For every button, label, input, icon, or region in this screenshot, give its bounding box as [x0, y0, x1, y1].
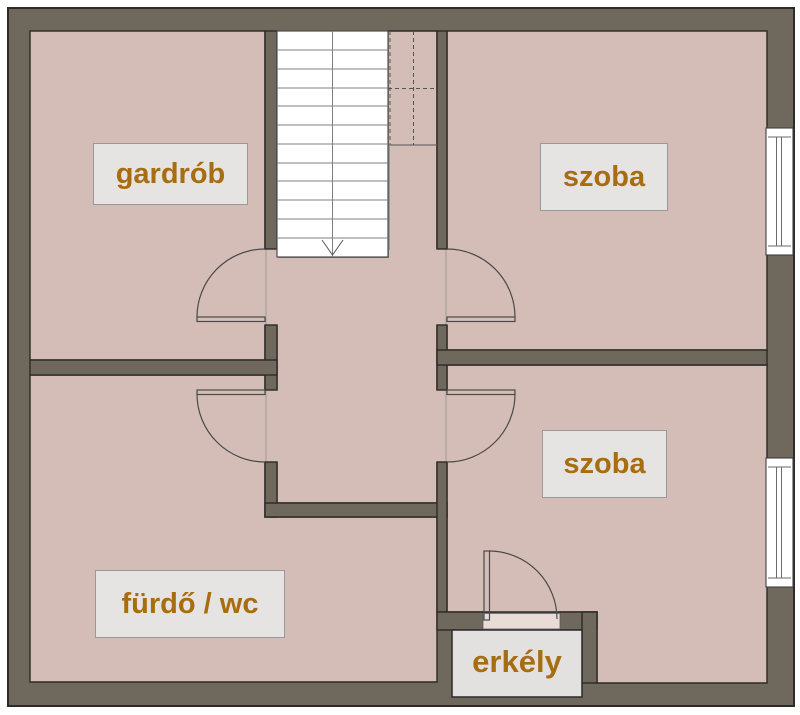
wall-gardrob-furdo-divider — [30, 360, 277, 375]
wall-balcony-right-flank — [582, 612, 597, 683]
label-furdo-wc-text: fürdő / wc — [122, 588, 259, 621]
wall-hall-left-stem — [265, 325, 277, 390]
wall-szoba-top-left — [437, 31, 447, 249]
window-bottom — [766, 458, 793, 587]
wall-szoba-divider — [437, 350, 767, 365]
label-erkely-text: erkély — [472, 644, 562, 680]
label-szoba-top: szoba — [540, 143, 668, 211]
wall-balcony-left-jog — [437, 612, 483, 630]
label-szoba-bottom-text: szoba — [563, 448, 645, 481]
label-gardrob-text: gardrób — [116, 158, 226, 191]
label-szoba-bottom: szoba — [542, 430, 667, 498]
wall-gardrob-right — [265, 31, 277, 249]
wall-hall-right-lower — [437, 462, 447, 612]
wall-hall-bottom — [265, 503, 447, 517]
window-frame — [766, 128, 793, 255]
window-top — [766, 128, 793, 255]
label-szoba-top-text: szoba — [563, 161, 645, 194]
window-frame — [766, 458, 793, 587]
label-furdo-wc: fürdő / wc — [95, 570, 285, 638]
floor-plan: gardrób szoba szoba fürdő / wc erkély — [0, 0, 800, 715]
balcony-threshold — [483, 614, 560, 630]
label-erkely: erkély — [452, 630, 582, 694]
label-gardrob: gardrób — [93, 143, 248, 205]
